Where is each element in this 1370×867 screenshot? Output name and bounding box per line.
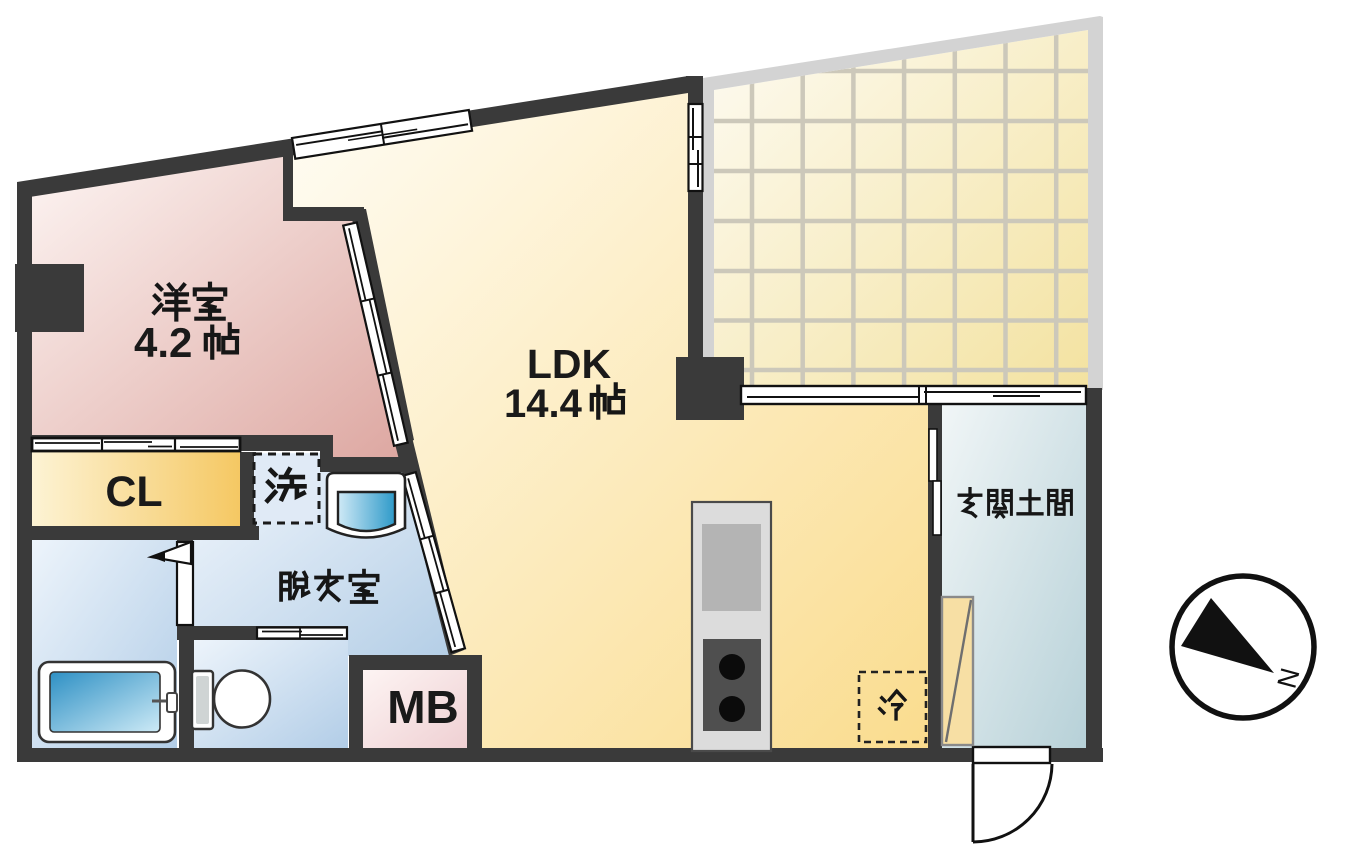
svg-text:4.2: 4.2 bbox=[134, 319, 192, 366]
svg-text:LDK: LDK bbox=[527, 341, 612, 387]
svg-text:MB: MB bbox=[387, 681, 459, 733]
svg-text:CL: CL bbox=[105, 468, 162, 516]
svg-text:14.4: 14.4 bbox=[504, 382, 583, 426]
